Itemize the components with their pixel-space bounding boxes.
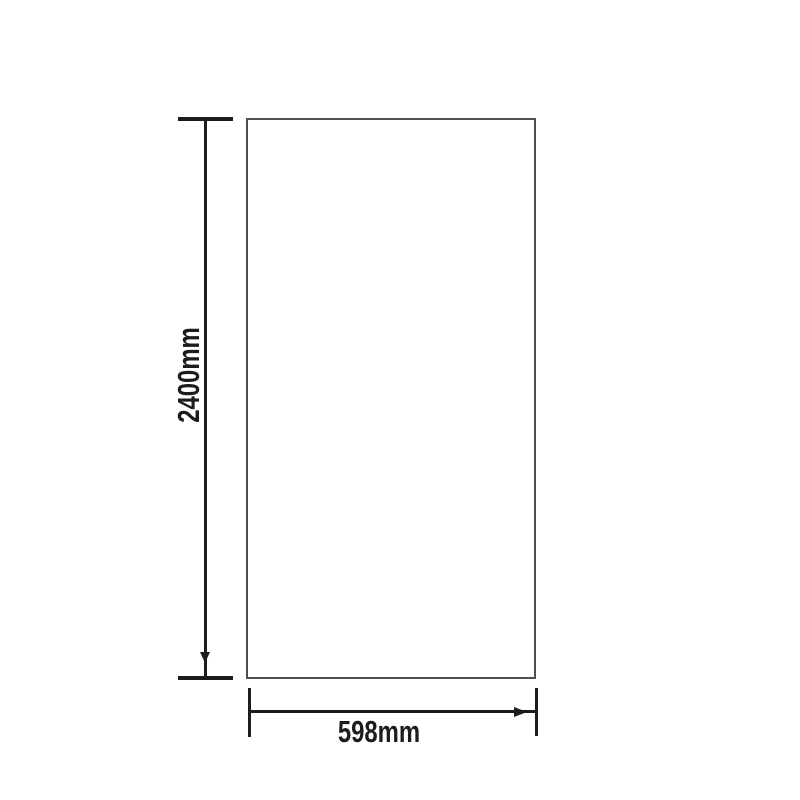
width-dimension-left-tick <box>248 688 251 737</box>
height-dimension-bottom-cap <box>178 676 233 680</box>
panel-outline <box>246 118 536 679</box>
height-dimension-top-cap <box>178 117 233 121</box>
width-dimension-right-tick <box>535 688 538 736</box>
arrowhead-right-icon <box>514 707 527 717</box>
height-dimension-label-text: 2400mm <box>173 327 204 423</box>
width-dimension-label-text: 598mm <box>338 716 420 747</box>
dimension-diagram: 2400mm 598mm <box>0 0 800 800</box>
arrowhead-down-icon <box>200 652 210 663</box>
width-dimension-label: 598mm <box>325 713 433 749</box>
height-dimension-label: 2400mm <box>170 321 206 429</box>
